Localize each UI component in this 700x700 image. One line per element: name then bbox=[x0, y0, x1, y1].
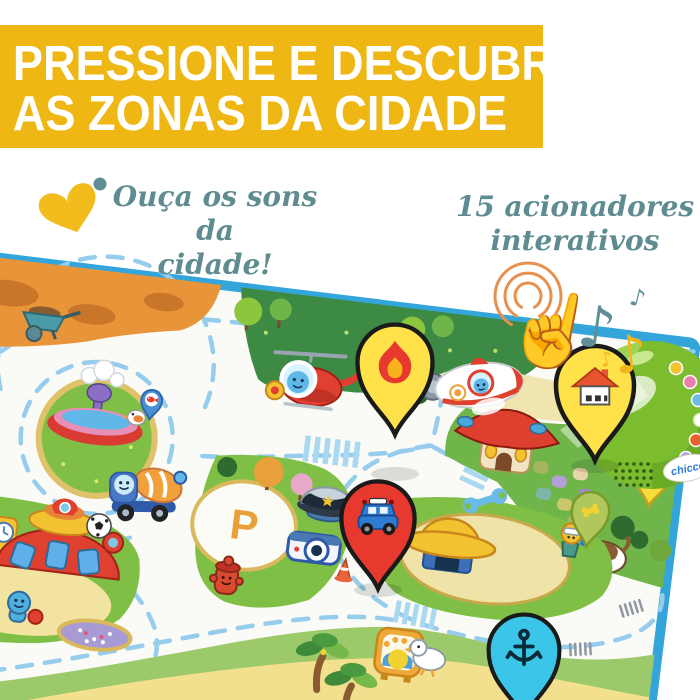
feature-text: 15 acionadores interativos bbox=[445, 190, 700, 258]
svg-text:♪: ♪ bbox=[611, 324, 650, 387]
camera bbox=[286, 531, 341, 565]
feature-line-1: 15 acionadores bbox=[456, 190, 694, 223]
tagline-line-1: Ouça os sons da bbox=[113, 180, 317, 247]
headline-banner: PRESSIONE E DESCUBRA AS ZONAS DA CIDADE bbox=[0, 25, 543, 148]
tagline: Ouça os sons da cidade! bbox=[95, 180, 335, 282]
headline-line-1: PRESSIONE E DESCUBRA bbox=[13, 39, 500, 89]
headline-line-2: AS ZONAS DA CIDADE bbox=[13, 89, 500, 139]
feature-line-2: interativos bbox=[491, 224, 660, 257]
svg-text:♪: ♪ bbox=[627, 282, 649, 313]
tagline-line-2: cidade! bbox=[157, 248, 272, 281]
product-card: P bbox=[0, 0, 700, 700]
parking-letter: P bbox=[227, 500, 261, 550]
